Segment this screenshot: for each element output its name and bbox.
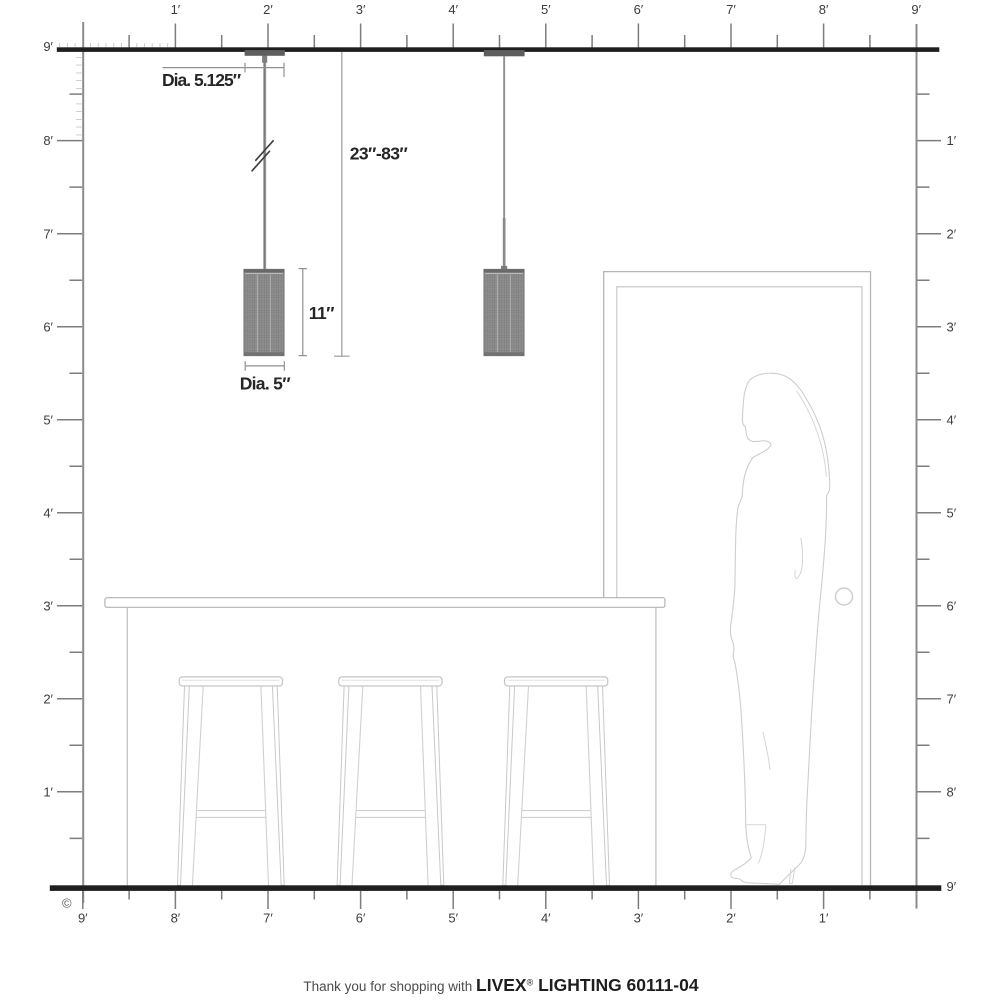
svg-text:5′: 5′: [43, 412, 53, 427]
svg-text:4′: 4′: [448, 2, 458, 17]
svg-text:3′: 3′: [356, 2, 366, 17]
svg-text:23″-83″: 23″-83″: [350, 144, 409, 164]
svg-text:©: ©: [62, 896, 72, 911]
svg-text:2′: 2′: [263, 2, 273, 17]
svg-text:6′: 6′: [634, 2, 644, 17]
svg-text:4′: 4′: [43, 505, 53, 520]
svg-text:4′: 4′: [947, 412, 957, 427]
svg-text:Dia. 5.125″: Dia. 5.125″: [162, 70, 242, 90]
svg-text:Dia. 5″: Dia. 5″: [240, 373, 291, 393]
svg-text:9′: 9′: [78, 911, 88, 926]
svg-text:2′: 2′: [43, 691, 53, 706]
svg-text:7′: 7′: [43, 226, 53, 241]
svg-text:1′: 1′: [43, 784, 53, 799]
svg-text:2′: 2′: [726, 911, 736, 926]
svg-text:8′: 8′: [43, 133, 53, 148]
svg-text:3′: 3′: [634, 911, 644, 926]
svg-text:2′: 2′: [947, 226, 957, 241]
svg-text:5′: 5′: [448, 911, 458, 926]
svg-text:8′: 8′: [171, 911, 181, 926]
svg-text:1′: 1′: [947, 133, 957, 148]
svg-text:8′: 8′: [947, 784, 957, 799]
svg-text:4′: 4′: [541, 911, 551, 926]
svg-text:11″: 11″: [309, 303, 335, 323]
svg-text:1′: 1′: [819, 911, 829, 926]
svg-text:3′: 3′: [43, 598, 53, 613]
svg-text:7′: 7′: [947, 691, 957, 706]
svg-text:5′: 5′: [947, 505, 957, 520]
svg-text:8′: 8′: [819, 2, 829, 17]
svg-text:5′: 5′: [541, 2, 551, 17]
svg-text:1′: 1′: [171, 2, 181, 17]
svg-text:9′: 9′: [43, 39, 53, 54]
svg-text:3′: 3′: [947, 319, 957, 334]
svg-text:7′: 7′: [263, 911, 273, 926]
svg-text:9′: 9′: [911, 2, 921, 17]
svg-text:6′: 6′: [356, 911, 366, 926]
svg-text:6′: 6′: [947, 598, 957, 613]
svg-text:9′: 9′: [947, 879, 957, 894]
svg-text:7′: 7′: [726, 2, 736, 17]
svg-text:6′: 6′: [43, 319, 53, 334]
